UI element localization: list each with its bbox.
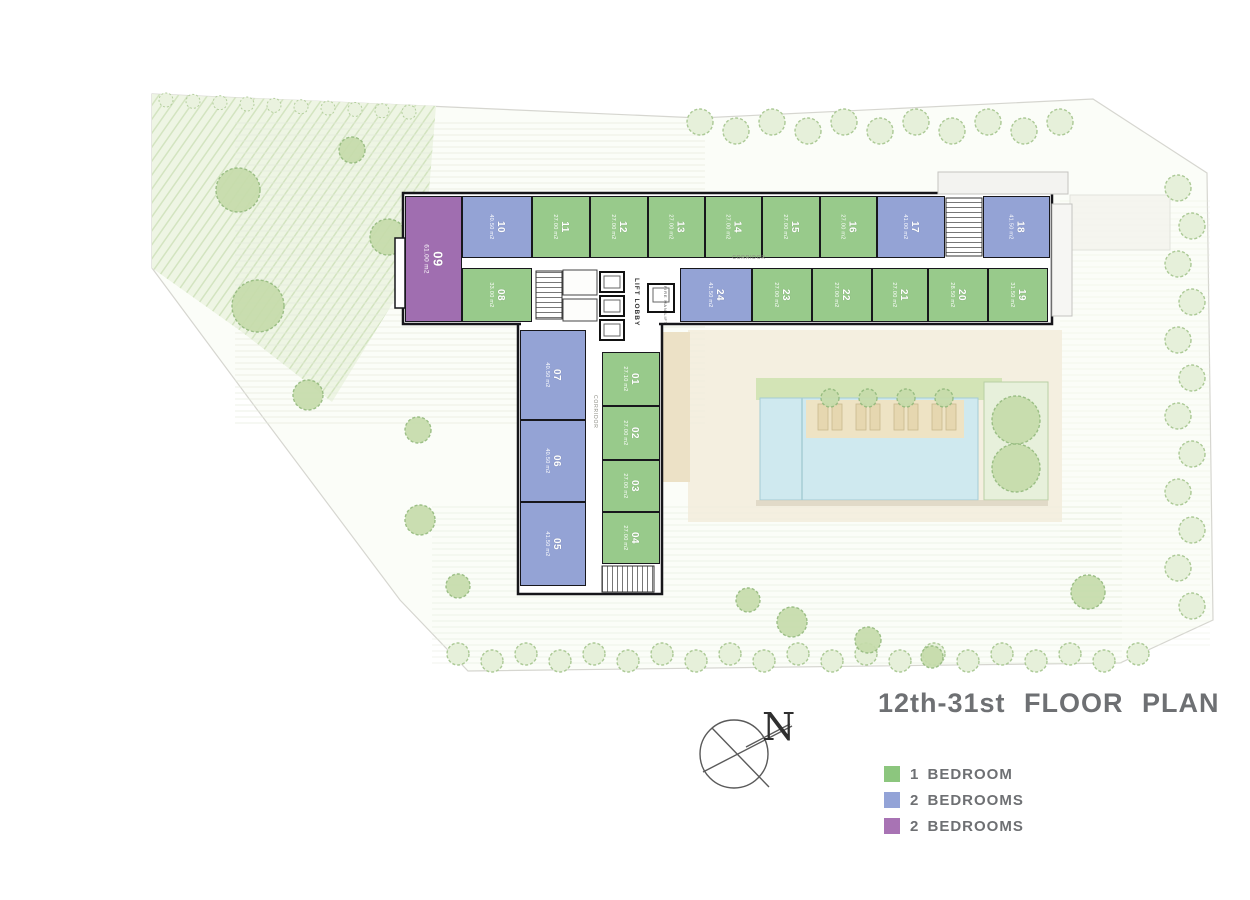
unit-number: 10	[494, 221, 506, 233]
unit-16: 1627.00 m2	[820, 196, 877, 258]
legend: 1 BEDROOM 2 BEDROOMS 2 BEDROOMS	[884, 766, 1024, 844]
unit-23: 2327.00 m2	[752, 268, 812, 322]
unit-area: 27.00 m2	[782, 214, 788, 239]
unit-area: 27.00 m2	[773, 282, 779, 307]
unit-number: 22	[839, 289, 851, 301]
legend-row-2-bedrooms-purple: 2 BEDROOMS	[884, 818, 1024, 834]
unit-12: 1227.00 m2	[590, 196, 648, 258]
unit-number: 21	[897, 289, 909, 301]
unit-number: 11	[558, 221, 570, 233]
unit-19: 1931.50 m2	[988, 268, 1048, 322]
unit-area: 61.00 m2	[422, 244, 429, 274]
unit-area: 31.50 m2	[1009, 282, 1015, 307]
unit-18: 1841.50 m2	[983, 196, 1050, 258]
unit-13: 1327.00 m2	[648, 196, 705, 258]
unit-04: 0427.00 m2	[602, 512, 660, 564]
unit-02: 0227.00 m2	[602, 406, 660, 460]
unit-number: 05	[550, 538, 562, 550]
floor-plan-canvas: N 0127.10 m20227.00 m20327.00 m20427.00 …	[0, 0, 1250, 900]
unit-area: 27.00 m2	[725, 214, 731, 239]
unit-area: 27.00 m2	[622, 525, 628, 550]
unit-number: 19	[1015, 289, 1027, 301]
unit-number: 12	[616, 221, 628, 233]
unit-area: 27.10 m2	[622, 366, 628, 391]
fire-man-lift-label: FIRE MAN LIFT	[663, 286, 668, 325]
unit-number: 17	[908, 221, 920, 233]
unit-area: 27.00 m2	[622, 420, 628, 445]
unit-number: 14	[731, 221, 743, 233]
unit-area: 41.50 m2	[707, 282, 713, 307]
unit-area: 27.00 m2	[833, 282, 839, 307]
legend-swatch-blue	[884, 792, 900, 808]
legend-row-1-bedroom: 1 BEDROOM	[884, 766, 1024, 782]
unit-area: 27.00 m2	[622, 473, 628, 498]
unit-11: 1127.00 m2	[532, 196, 590, 258]
legend-swatch-green	[884, 766, 900, 782]
unit-area: 40.50 m2	[544, 362, 550, 387]
unit-number: 07	[550, 369, 562, 381]
unit-01: 0127.10 m2	[602, 352, 660, 406]
unit-area: 40.50 m2	[544, 448, 550, 473]
unit-number: 18	[1014, 221, 1026, 233]
corridor-label-wing: CORRIDOR	[592, 395, 598, 429]
unit-area: 27.00 m2	[610, 214, 616, 239]
unit-area: 27.00 m2	[840, 214, 846, 239]
unit-number: 20	[955, 289, 967, 301]
unit-area: 41.50 m2	[544, 531, 550, 556]
units-layer: 0127.10 m20227.00 m20327.00 m20427.00 m2…	[0, 0, 1250, 900]
unit-area: 41.50 m2	[1008, 214, 1014, 239]
lift-lobby-label: LIFT LOBBY	[633, 278, 640, 326]
unit-24: 2441.50 m2	[680, 268, 752, 322]
legend-swatch-purple	[884, 818, 900, 834]
unit-area: 28.50 m2	[949, 282, 955, 307]
unit-number: 06	[550, 455, 562, 467]
unit-14: 1427.00 m2	[705, 196, 762, 258]
unit-21: 2127.00 m2	[872, 268, 928, 322]
unit-05: 0541.50 m2	[520, 502, 586, 586]
legend-row-2-bedrooms-blue: 2 BEDROOMS	[884, 792, 1024, 808]
unit-number: 23	[779, 289, 791, 301]
unit-number: 04	[628, 532, 640, 544]
unit-number: 24	[713, 289, 725, 301]
unit-06: 0640.50 m2	[520, 420, 586, 502]
unit-area: 27.00 m2	[552, 214, 558, 239]
unit-area: 41.00 m2	[902, 214, 908, 239]
unit-area: 27.00 m2	[891, 282, 897, 307]
unit-15: 1527.00 m2	[762, 196, 820, 258]
unit-09: 0961.00 m2	[405, 196, 462, 322]
unit-number: 01	[628, 373, 640, 385]
page-title: 12th-31st FLOOR PLAN	[878, 688, 1220, 719]
unit-number: 15	[788, 221, 800, 233]
corridor-label-top: CORRIDOR	[714, 255, 784, 261]
unit-number: 13	[674, 221, 686, 233]
unit-22: 2227.00 m2	[812, 268, 872, 322]
unit-17: 1741.00 m2	[877, 196, 945, 258]
unit-20: 2028.50 m2	[928, 268, 988, 322]
unit-number: 02	[628, 427, 640, 439]
unit-number: 03	[628, 480, 640, 492]
unit-number: 16	[846, 221, 858, 233]
legend-label: 2 BEDROOMS	[910, 818, 1024, 835]
unit-number: 09	[430, 251, 445, 266]
legend-label: 1 BEDROOM	[910, 766, 1013, 783]
unit-area: 27.00 m2	[668, 214, 674, 239]
unit-10: 1040.50 m2	[462, 196, 532, 258]
unit-07: 0740.50 m2	[520, 330, 586, 420]
legend-label: 2 BEDROOMS	[910, 792, 1024, 809]
unit-03: 0327.00 m2	[602, 460, 660, 512]
unit-number: 08	[494, 289, 506, 301]
unit-area: 40.50 m2	[488, 214, 494, 239]
